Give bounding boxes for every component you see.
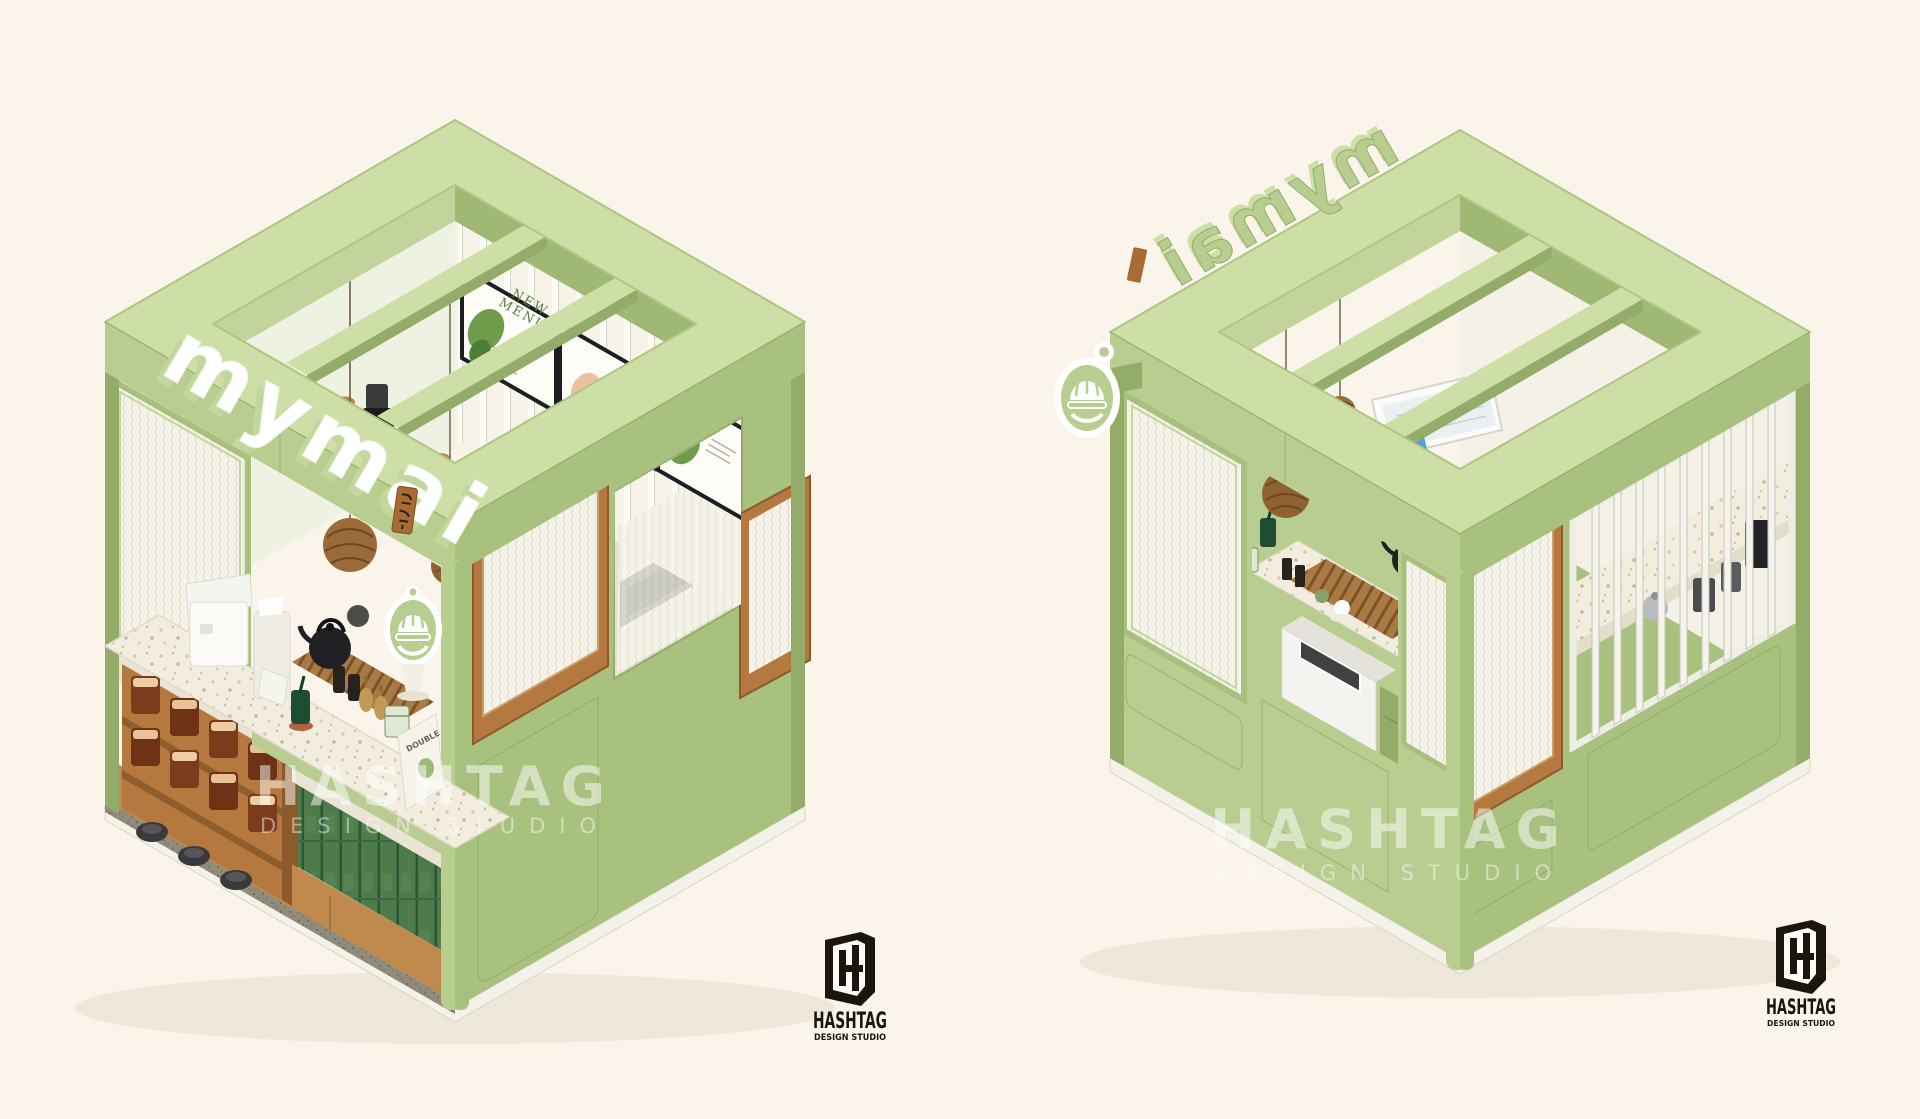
svg-text:DESIGN STUDIO: DESIGN STUDIO [1767, 1019, 1835, 1028]
watermark-right: HASHTAG DESIGN STUDIO [1210, 798, 1570, 885]
svg-text:DESIGN STUDIO: DESIGN STUDIO [260, 814, 610, 838]
left-kiosk-render: NEW MENU [75, 120, 835, 1044]
hashtag-logo-icon [825, 932, 875, 1006]
glass-carafe [347, 605, 369, 627]
svg-text:HASHTAG: HASHTAG [255, 755, 615, 818]
svg-text:DESIGN STUDIO: DESIGN STUDIO [814, 1033, 886, 1043]
svg-text:HASHTAG: HASHTAG [813, 1009, 887, 1034]
hashtag-logo-icon [1776, 920, 1826, 994]
pos-terminal [186, 574, 252, 666]
japanese-tag-back [1127, 247, 1148, 283]
matcha-tumbler [289, 676, 313, 731]
right-kiosk-render: mymai mymai HASHTAG DESIGN STUDIO [1054, 102, 1840, 998]
rear-glass-window-narrow [1404, 556, 1452, 772]
design-presentation-canvas: NEW MENU [0, 0, 1920, 1119]
watermark-left: HASHTAG DESIGN STUDIO [255, 755, 615, 838]
hashtag-logo-center: HASHTAG DESIGN STUDIO [813, 932, 887, 1043]
hashtag-logo-right: HASHTAG DESIGN STUDIO [1766, 920, 1836, 1028]
svg-text:DESIGN STUDIO: DESIGN STUDIO [1215, 861, 1565, 885]
svg-text:HASHTAG: HASHTAG [1210, 798, 1570, 861]
svg-text:HASHTAG: HASHTAG [1766, 995, 1836, 1019]
